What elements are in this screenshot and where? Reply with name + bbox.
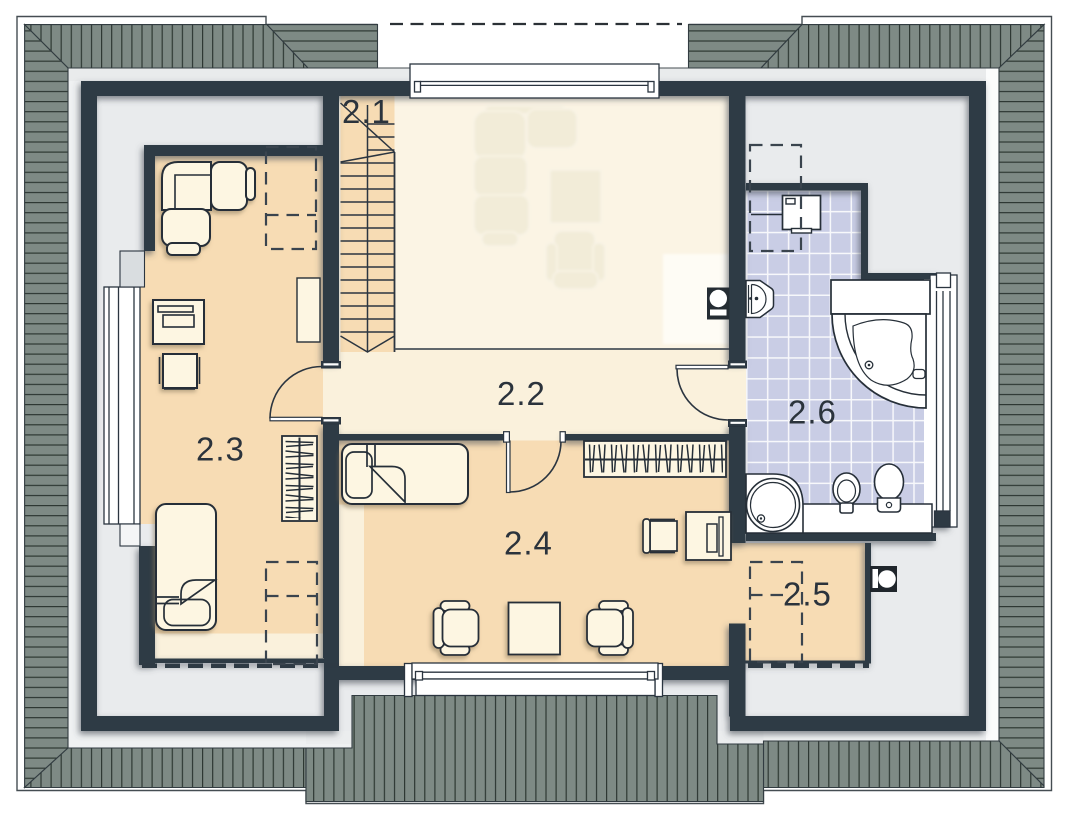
svg-text:2.5: 2.5 <box>783 576 832 613</box>
svg-text:2.2: 2.2 <box>497 375 546 412</box>
svg-text:2.4: 2.4 <box>504 525 553 562</box>
svg-text:2.3: 2.3 <box>196 431 245 468</box>
svg-text:2.1: 2.1 <box>342 93 391 130</box>
svg-text:2.6: 2.6 <box>788 394 837 431</box>
